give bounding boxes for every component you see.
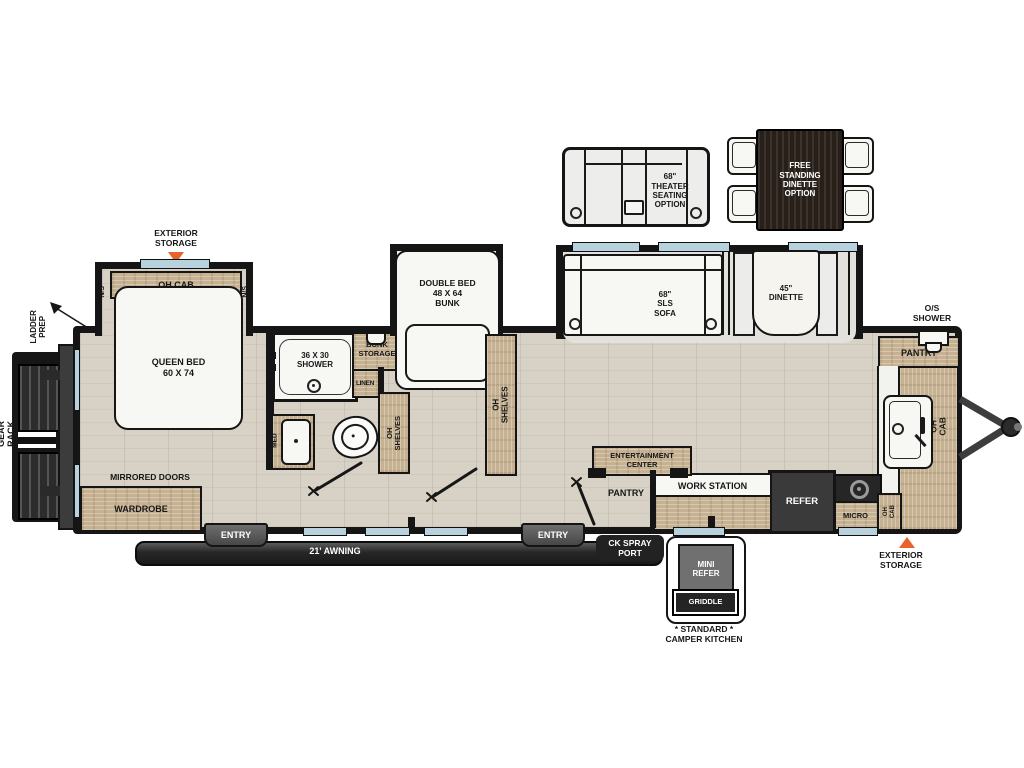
shower-label: 36 X 30 SHOWER: [278, 347, 352, 373]
free-standing-dinette-table: FREE STANDING DINETTE OPTION: [756, 129, 844, 231]
bath-sink-faucet-dot: [294, 439, 298, 443]
hitch: [960, 399, 1022, 457]
mirrored-doors-label: MIRRORED DOORS: [88, 471, 212, 483]
gear-rack-bar: [18, 437, 56, 444]
oh-shelves-right-label: OH SHELVES: [492, 387, 510, 424]
exterior-storage-bottom-label: EXTERIOR STORAGE: [856, 549, 946, 571]
griddle-label: GRIDDLE: [674, 591, 737, 614]
refrigerator: REFER: [768, 470, 836, 534]
sofa-back-line: [565, 256, 721, 271]
lower-bunk-outline: [405, 324, 490, 382]
entry-door-right: ENTRY: [521, 523, 585, 547]
kitchen-faucet: [920, 417, 925, 434]
toilet-bowl: [328, 411, 383, 463]
ec-mount-right: [670, 468, 688, 478]
sofa-recliner-knob-left: [569, 318, 581, 330]
os-shower-tab: [925, 342, 942, 353]
shower-valve-lower: [267, 364, 276, 371]
ladder-prep-arrow: [50, 302, 88, 328]
oh-shelves-left-wrap: OH SHELVES: [380, 394, 408, 472]
pantry-rear-label: PANTRY: [598, 486, 654, 500]
ladder-prep-label: LADDER PREP: [30, 310, 48, 343]
dinette-partition-2: [728, 252, 730, 335]
oh-shelves-left-label: OH SHELVES: [386, 416, 403, 450]
oh-cab-small-wrap: OH CAB: [879, 495, 900, 529]
oh-shelves-right-wrap: OH SHELVES: [487, 336, 515, 474]
drain-dot: [312, 384, 315, 387]
os-shower-label: O/S SHOWER: [906, 302, 958, 324]
bottom-window-2: [365, 527, 410, 536]
sofa-recliner-knob-right: [705, 318, 717, 330]
dinette-45-label: 45" DINETTE: [754, 252, 818, 334]
nightstand-left: N/S: [96, 270, 110, 314]
med-label: MED: [271, 434, 278, 448]
mini-refer-label: MINI REFER: [680, 546, 732, 592]
queen-bed-label: QUEEN BED 60 X 74: [116, 348, 241, 388]
chair-cushion: [845, 142, 869, 168]
entry-right-label: ENTRY: [523, 525, 583, 545]
shower-36x30: 36 X 30 SHOWER: [272, 332, 358, 402]
linen-side-wall: [378, 367, 384, 395]
wardrobe-label: WARDROBE: [82, 488, 200, 530]
kitchen-sink: [883, 395, 933, 469]
chair-cushion: [845, 190, 869, 216]
dinette-partition-1: [722, 252, 724, 335]
oh-shelves-left: OH SHELVES: [378, 392, 410, 474]
ck-spray-port-label: CK SPRAY PORT: [598, 536, 662, 560]
bottom-window-1: [303, 527, 347, 536]
double-bed-label: DOUBLE BED 48 X 64 BUNK: [397, 270, 498, 316]
burner: [850, 480, 869, 499]
door-stop-right: [708, 516, 715, 527]
oh-shelves-right: OH SHELVES: [485, 334, 517, 476]
theater-seating-option: 68" THEATER SEATING OPTION: [562, 147, 710, 227]
kitchen-sink-knob: [892, 423, 904, 435]
gear-rack-crossbar-bottom: [40, 486, 60, 496]
sofa-slide-window-1: [572, 242, 640, 252]
linen-label: LINEN: [352, 371, 378, 396]
bottom-window-4: [673, 527, 725, 536]
exterior-storage-bottom-arrow-icon: [899, 537, 915, 548]
chair-cushion: [732, 142, 756, 168]
oh-cab-small-label: OH CAB: [883, 502, 896, 523]
door-stop-left: [408, 517, 415, 528]
queen-bed: QUEEN BED 60 X 74: [114, 286, 243, 430]
camper-kitchen-box: MINI REFER GRIDDLE: [666, 536, 746, 624]
oh-cab-small: OH CAB: [877, 493, 902, 531]
queen-slide-window: [140, 259, 210, 269]
shower-drain: [307, 379, 321, 393]
gear-rack-crossbar-top: [40, 370, 60, 380]
sofa-slide-window-2: [658, 242, 730, 252]
med-cabinet-label-wrap: MED: [269, 424, 281, 458]
sls-sofa-label: 68" SLS SOFA: [625, 280, 705, 328]
chair-cushion: [732, 190, 756, 216]
micro-label: MICRO: [832, 503, 879, 529]
wardrobe: WARDROBE: [80, 486, 202, 532]
theater-option-label: 68" THEATER SEATING OPTION: [637, 166, 703, 216]
entry-door-left: ENTRY: [204, 523, 268, 547]
ns-right-label: N/S: [242, 286, 250, 298]
bottom-window-5: [838, 527, 878, 536]
ns-left-label: N/S: [99, 286, 107, 298]
ladder-prep-label-wrap: LADDER PREP: [24, 296, 54, 358]
work-station-label: WORK STATION: [655, 475, 770, 497]
toilet-seat: [338, 421, 371, 453]
bunk-storage-fixture: [366, 332, 386, 345]
rv-floorplan: 68" THEATER SEATING OPTION FREE STANDING…: [0, 0, 1024, 768]
mini-refer: MINI REFER: [678, 544, 734, 594]
camper-kitchen-caption: * STANDARD * CAMPER KITCHEN: [656, 622, 752, 646]
sls-sofa: 68" SLS SOFA: [563, 254, 723, 336]
awning-label: 21' AWNING: [250, 545, 420, 558]
exterior-storage-top-label: EXTERIOR STORAGE: [137, 227, 215, 249]
entry-left-label: ENTRY: [206, 525, 266, 545]
theater-recliner-knob-left: [570, 207, 582, 219]
dinette-option-label: FREE STANDING DINETTE OPTION: [758, 131, 842, 229]
gear-rack-gap: [18, 432, 56, 448]
shower-valve-upper: [267, 352, 276, 359]
dinette-partition-3: [848, 252, 850, 335]
gear-rack-post: [58, 344, 75, 530]
bottom-window-3: [424, 527, 468, 536]
dinette-table-45: 45" DINETTE: [752, 250, 820, 336]
refer-label: REFER: [771, 473, 833, 531]
burner-dot: [857, 487, 861, 491]
toilet: [332, 414, 378, 460]
bath-sink: [281, 419, 311, 465]
ec-mount-left: [588, 468, 606, 478]
griddle: GRIDDLE: [672, 589, 739, 616]
